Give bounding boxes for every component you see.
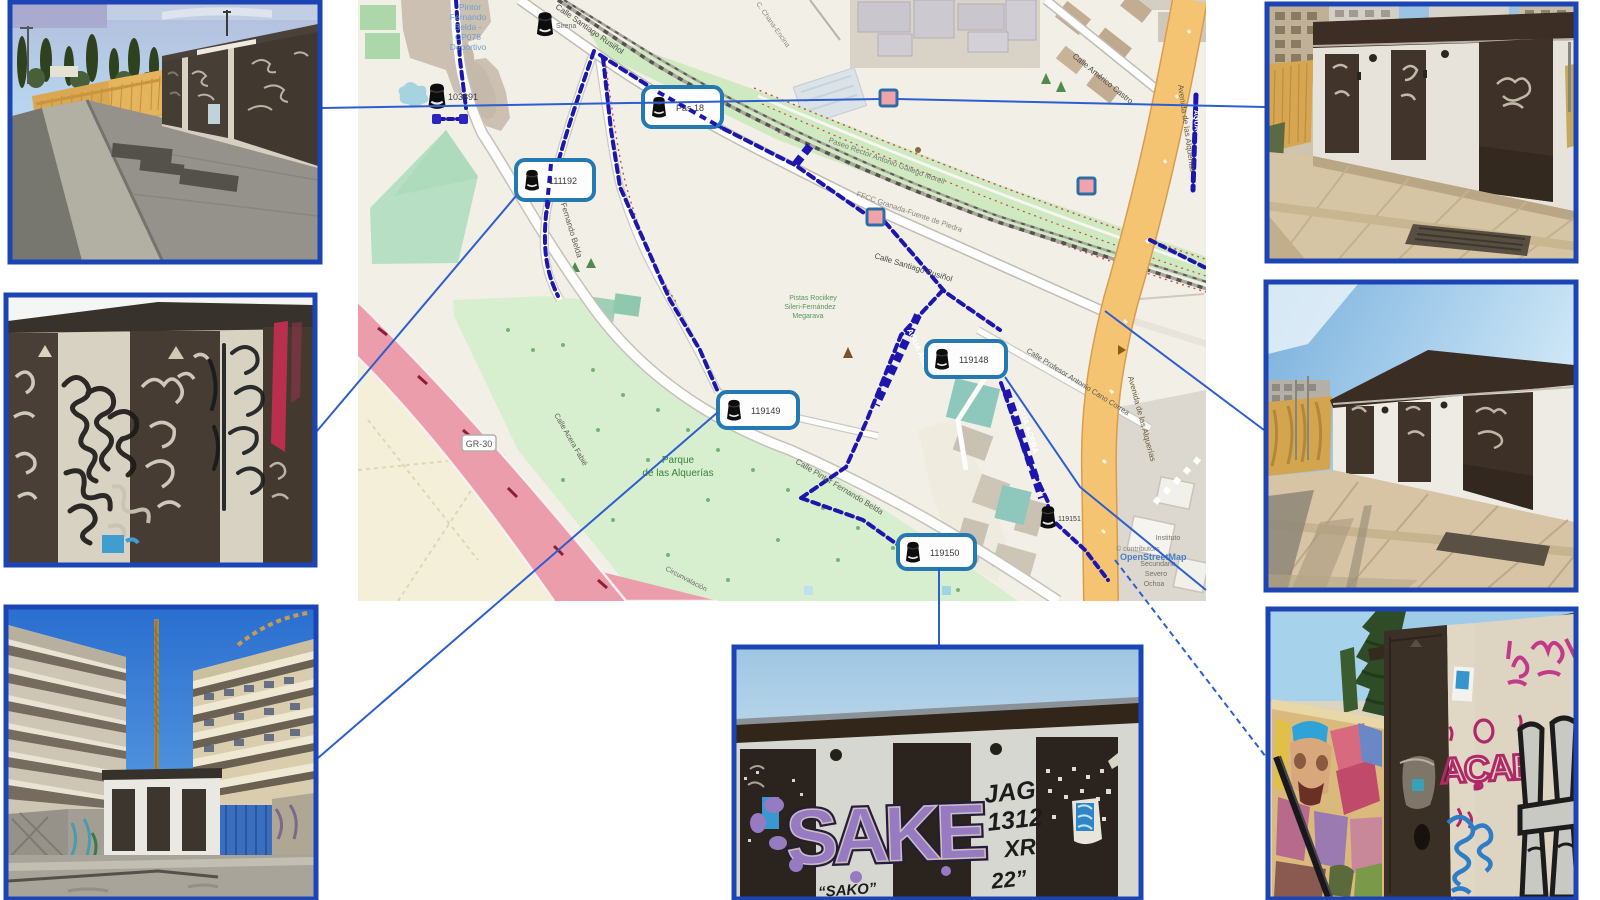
svg-text:119148: 119148 bbox=[959, 355, 988, 365]
svg-text:Pintor: Pintor bbox=[459, 2, 481, 12]
svg-text:119150: 119150 bbox=[930, 548, 959, 558]
svg-text:CP078: CP078 bbox=[455, 32, 481, 42]
svg-text:119151: 119151 bbox=[1058, 516, 1081, 523]
svg-text:de las Alquerías: de las Alquerías bbox=[642, 468, 713, 479]
svg-text:AGUA: AGUA bbox=[1192, 110, 1200, 131]
svg-text:XR: XR bbox=[1001, 833, 1038, 862]
svg-text:22”: 22” bbox=[989, 865, 1028, 894]
svg-text:SAKE: SAKE bbox=[784, 787, 986, 882]
svg-text:103891: 103891 bbox=[448, 92, 478, 102]
svg-text:Pistas Rociikey: Pistas Rociikey bbox=[789, 295, 837, 302]
svg-text:119149: 119149 bbox=[751, 406, 780, 416]
svg-text:OpenStreetMap: OpenStreetMap bbox=[1120, 552, 1187, 562]
svg-text:111192: 111192 bbox=[549, 176, 577, 186]
svg-text:1312: 1312 bbox=[986, 803, 1044, 837]
svg-text:Belda -: Belda - bbox=[455, 22, 482, 32]
svg-text:Severo: Severo bbox=[1145, 571, 1167, 578]
svg-text:Megarava: Megarava bbox=[792, 313, 823, 320]
svg-text:Ochoa: Ochoa bbox=[1144, 581, 1165, 588]
svg-text:Instituto: Instituto bbox=[1156, 535, 1181, 542]
svg-text:Fernando: Fernando bbox=[450, 12, 487, 22]
svg-text:GR-30: GR-30 bbox=[466, 439, 493, 449]
svg-text:Sileri-Fernández: Sileri-Fernández bbox=[784, 304, 836, 311]
svg-text:Sirena: Sirena bbox=[556, 23, 576, 30]
svg-text:Deportivo: Deportivo bbox=[450, 42, 487, 52]
